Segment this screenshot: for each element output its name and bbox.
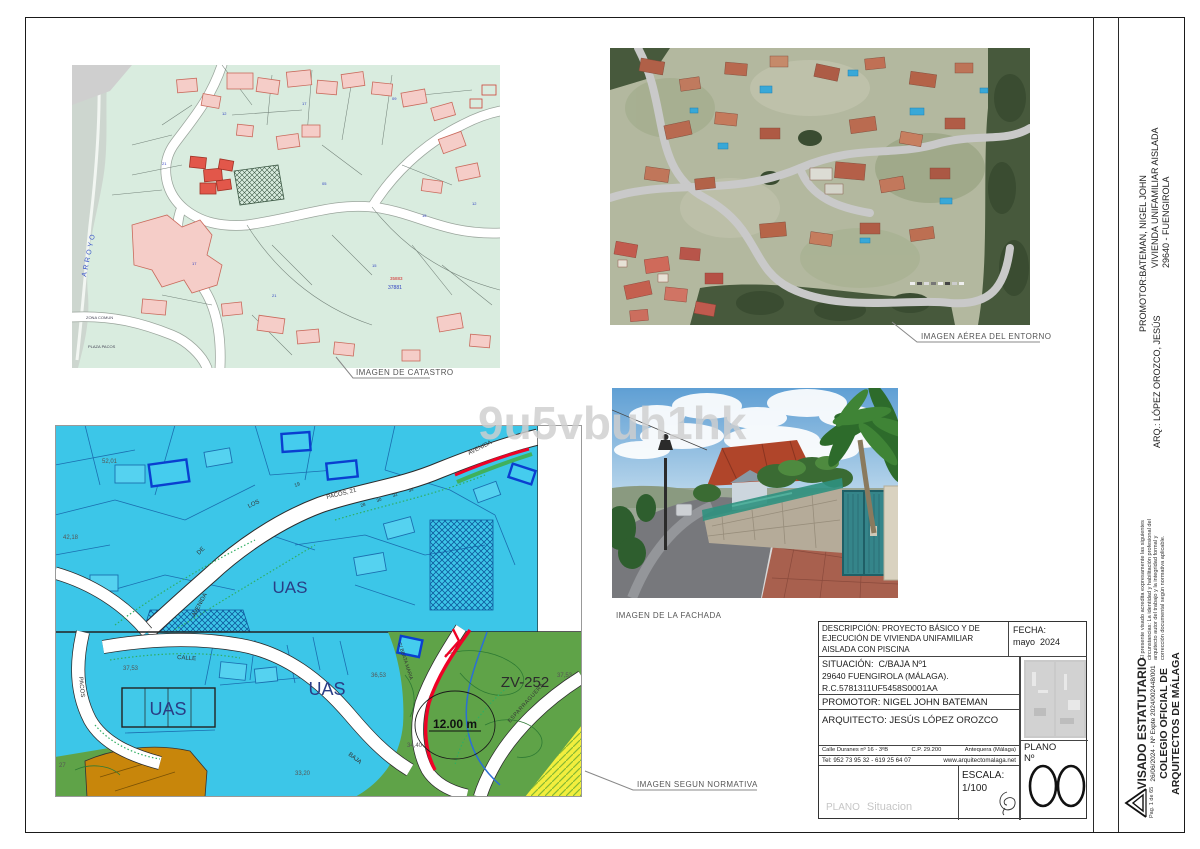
- catastro-parcel-number: 17: [302, 101, 307, 106]
- colegio-line1: COLEGIO OFICIAL DE: [1158, 641, 1170, 806]
- plano-number-cell: PLANO Nº: [1020, 741, 1088, 820]
- architect-contact-row: Tel: 952 73 95 32 - 619 25 64 07 www.arq…: [819, 756, 1020, 766]
- caption-normativa: IMAGEN SEGUN NORMATIVA: [637, 780, 758, 789]
- normativa-map-image: AVENIDA DE LOS PACOS, 21 19 AVENIDA 28 3…: [55, 425, 582, 797]
- title-block: DESCRIPCIÓN: PROYECTO BÁSICO Y DE EJECUC…: [818, 621, 1087, 819]
- sidebar-promotor-name: BATEMAN, NIGEL JOHN: [1138, 175, 1148, 277]
- plano-name-cell: PLANO Situacion: [819, 766, 959, 820]
- plan-stamp-thumbnail: [1024, 660, 1086, 738]
- caption-catastro: IMAGEN DE CATASTRO: [356, 368, 454, 377]
- address-city: Antequera (Málaga): [965, 747, 1016, 755]
- elevation-number: 27: [59, 763, 66, 769]
- caption-fachada: IMAGEN DE LA FACHADA: [616, 611, 721, 620]
- caption-aerea: IMAGEN AÉREA DEL ENTORNO: [921, 332, 1051, 341]
- catastro-parcel-number: 12: [472, 201, 477, 206]
- arquitecto-cell: ARQUITECTO: JESÚS LÓPEZ OROZCO: [819, 710, 1020, 746]
- plano-label: PLANO: [1024, 743, 1085, 754]
- situacion-line2: 29640 FUENGIROLA (MÁLAGA).: [822, 670, 1016, 682]
- catastro-parcel-number: 21: [272, 293, 277, 298]
- visado-note-line2: circunstancias: La identidad y habilitac…: [1147, 455, 1154, 660]
- descripcion-label: DESCRIPCIÓN:: [822, 624, 880, 633]
- catastro-parcel-number: 15: [422, 213, 427, 218]
- catastro-ref-blue: 37881: [388, 285, 402, 291]
- zone-label-uas-boxed: UAS: [149, 699, 186, 719]
- elevation-number: 42,18: [63, 535, 79, 541]
- colegio-line2: ARQUITECTOS DE MÁLAGA: [1170, 641, 1182, 806]
- descripcion-line2: EJECUCIÓN DE VIVIENDA UNIFAMILIAR: [822, 634, 1005, 644]
- main-frame-right-line: [1093, 17, 1094, 832]
- promotor-value: PROMOTOR: NIGEL JOHN BATEMAN: [822, 697, 988, 708]
- catastro-parcel-number: 09: [392, 96, 397, 101]
- architect-address-row: Calle Duranes nº 16 - 3ºB C.P. 29.200 An…: [819, 746, 1020, 756]
- fecha-value: mayo 2024: [1013, 636, 1083, 648]
- escala-cell: ESCALA: 1/100: [959, 766, 1020, 820]
- architect-signature-icon: [995, 790, 1019, 818]
- stamp-thumbnail-cell: [1020, 657, 1088, 741]
- elevation-number: 37,53: [123, 666, 139, 672]
- visado-note-line1: El presente visado acredita expresamente…: [1140, 455, 1147, 660]
- elevation-number: 52,01: [102, 459, 118, 465]
- fecha-cell: FECHA: mayo 2024: [1009, 622, 1087, 657]
- fecha-label: FECHA:: [1013, 624, 1083, 636]
- promotor-cell: PROMOTOR: NIGEL JOHN BATEMAN: [819, 695, 1020, 710]
- plan-sheet: 12 17 09 21 05 15 17 21 15 12 35883 3788…: [0, 0, 1200, 849]
- address-street: Calle Duranes nº 16 - 3ºB: [822, 747, 888, 755]
- catastro-parcel-number: 17: [192, 261, 197, 266]
- descripcion-line1: PROYECTO BÁSICO Y DE: [882, 624, 980, 633]
- catastro-plaza-label: PLAZA PACOS: [88, 344, 116, 349]
- elevation-number: 36,53: [371, 673, 387, 679]
- visado-note-line4: corrección documental según normativa ap…: [1160, 455, 1167, 660]
- zone-label-uas: UAS: [308, 679, 345, 699]
- situacion-line1: SITUACIÓN: C/BAJA Nº1: [822, 658, 1016, 670]
- sidebar-promotor-line3: 29640 - FUENGIROLA: [1161, 127, 1173, 332]
- arquitecto-value: ARQUITECTO: JESÚS LÓPEZ OROZCO: [822, 715, 998, 726]
- plano-name-value: Situacion: [867, 801, 912, 813]
- aerial-photo-image: [610, 48, 1030, 325]
- escala-label: ESCALA:: [962, 769, 1016, 782]
- catastro-parcel-number: 15: [372, 263, 377, 268]
- sidebar-arquitecto-label: ARQ.: LÓPEZ OROZCO, JESÚS: [1152, 313, 1162, 448]
- sidebar-promotor-line2: VIVIENDA UNIFAMILIAR AISLADA: [1150, 127, 1162, 332]
- catastro-parcel-number: 21: [162, 161, 167, 166]
- phone-numbers: Tel: 952 73 95 32 - 619 25 64 07: [822, 757, 911, 765]
- elevation-number: 37,53: [557, 673, 573, 679]
- plano-number-00: [1026, 763, 1086, 809]
- descripcion-cell: DESCRIPCIÓN: PROYECTO BÁSICO Y DE EJECUC…: [819, 622, 1009, 657]
- elevation-number: 34,40: [407, 743, 423, 749]
- sidebar-visado-note: El presente visado acredita expresamente…: [1140, 455, 1166, 660]
- visado-note-line3: arquitecto autor del trabajo y la integr…: [1153, 455, 1160, 660]
- page-count-label: Pag. 1 de 65: [1149, 780, 1155, 818]
- sidebar-visado-block: VISADO ESTATUTARIO 26/06/2024 - Nº Expte…: [1136, 641, 1182, 806]
- catastro-map-image: 12 17 09 21 05 15 17 21 15 12 35883 3788…: [72, 65, 500, 368]
- visado-title: VISADO ESTATUTARIO: [1136, 641, 1149, 806]
- situacion-line3: R.C.5781311UF5458S0001AA: [822, 682, 1016, 694]
- catastro-ref-red: 35883: [390, 276, 403, 281]
- coa-malaga-logo-icon: [1122, 787, 1148, 819]
- sidebar-promotor-label: PROMOTOR:: [1138, 277, 1148, 332]
- situacion-cell: SITUACIÓN: C/BAJA Nº1 29640 FUENGIROLA (…: [819, 657, 1020, 695]
- catastro-zona-comun-label: ZONA COMUN: [86, 315, 113, 320]
- address-cp: C.P. 29.200: [911, 747, 941, 755]
- facade-photo-image: [612, 388, 898, 598]
- sidebar-promotor-block: PROMOTOR:BATEMAN, NIGEL JOHN VIVIENDA UN…: [1138, 127, 1173, 332]
- dimension-label: 12.00 m: [433, 717, 477, 731]
- catastro-parcel-number: 12: [222, 111, 227, 116]
- zone-label-uas: UAS: [273, 578, 308, 597]
- plano-name-label: PLANO: [826, 802, 860, 813]
- catastro-parcel-number: 05: [322, 181, 327, 186]
- sidebar-divider-line: [1118, 17, 1119, 832]
- elevation-number: 33,20: [295, 771, 311, 777]
- website: www.arquitectomalaga.net: [943, 757, 1016, 765]
- descripcion-line3: AISLADA CON PISCINA: [822, 645, 1005, 655]
